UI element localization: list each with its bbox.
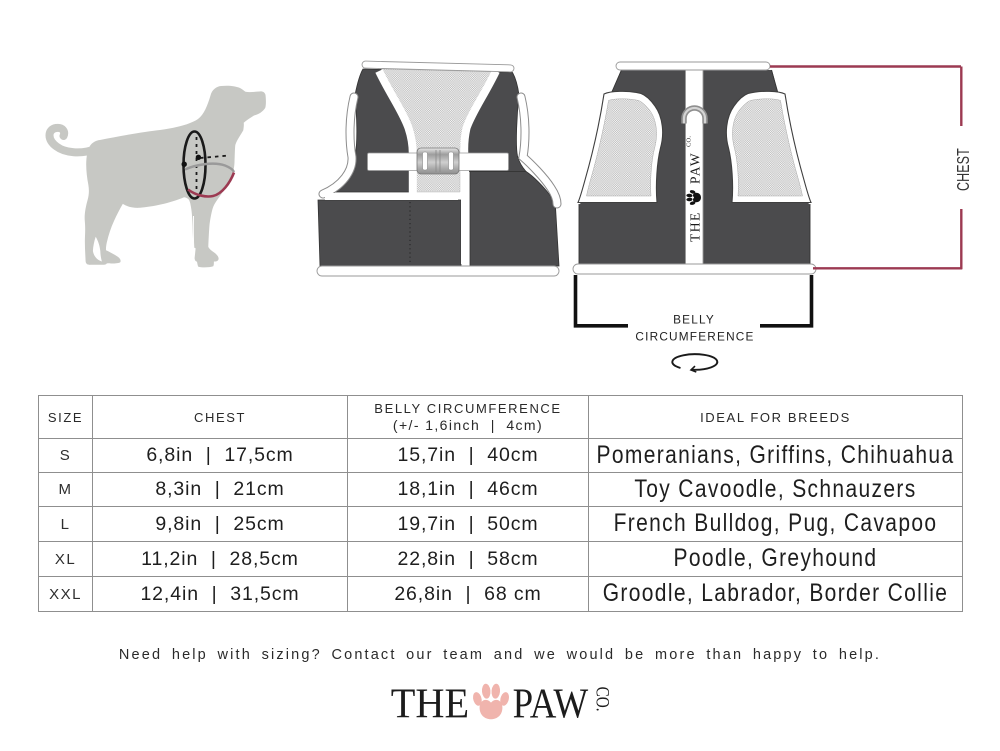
- svg-text:CHEST: CHEST: [954, 148, 974, 191]
- svg-text:CO.: CO.: [592, 687, 613, 712]
- svg-text:BELLY: BELLY: [673, 313, 715, 327]
- svg-text:THE: THE: [391, 681, 469, 727]
- svg-text:PAW: PAW: [513, 681, 589, 727]
- svg-text:CO.: CO.: [686, 136, 693, 147]
- svg-text:PAW: PAW: [687, 152, 702, 184]
- svg-text:CIRCUMFERENCE: CIRCUMFERENCE: [635, 330, 754, 344]
- svg-text:THE: THE: [687, 211, 702, 242]
